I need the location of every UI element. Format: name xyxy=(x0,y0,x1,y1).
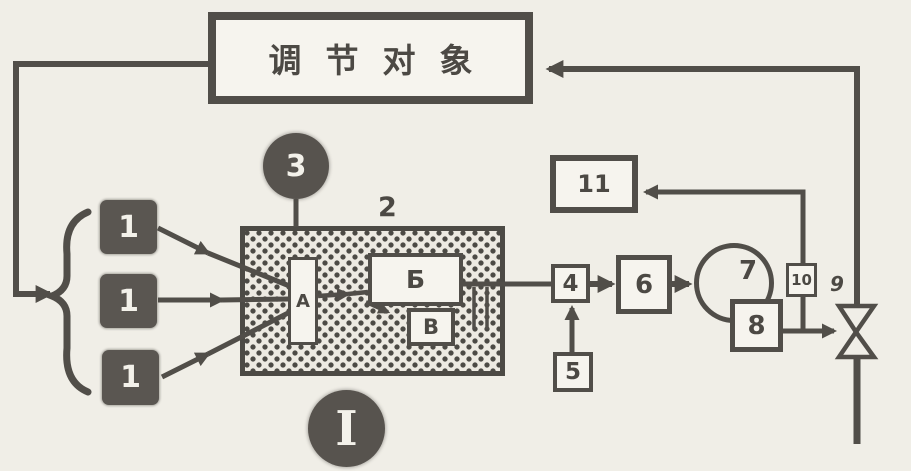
sensor-box-1b: 1 xyxy=(100,274,157,328)
brace-left-icon xyxy=(52,212,88,392)
element-v-label: В xyxy=(423,315,439,339)
sensor1-arrow-tail xyxy=(208,253,292,287)
node-4-label: 4 xyxy=(562,271,578,297)
figure-label-text: I xyxy=(335,401,357,457)
element-b-label: Б xyxy=(406,265,425,294)
diagram-canvas: 调节对象 1 1 1 2 3 А Б В 4 5 6 7 8 1 xyxy=(0,0,911,471)
valve-icon-lower xyxy=(839,332,874,357)
chamber-2-label: 2 xyxy=(378,192,397,223)
node-8-label: 8 xyxy=(747,311,765,341)
sensor-1c-label: 1 xyxy=(120,360,141,395)
node-box-6: 6 xyxy=(616,255,672,314)
valve-9-label-text: 9 xyxy=(830,272,844,296)
a-to-b-arrow-tail xyxy=(348,292,368,294)
feedback-line-left xyxy=(16,64,208,294)
sensor3-arrow-tail xyxy=(208,311,292,354)
node-7-label: 7 xyxy=(739,256,757,286)
a-to-b-arrow xyxy=(318,294,348,296)
chamber-2-label-text: 2 xyxy=(378,192,397,223)
node-11-label: 11 xyxy=(577,170,610,198)
sensor-box-1a: 1 xyxy=(100,200,157,254)
valve-9-label: 9 xyxy=(830,272,844,296)
node-5-label: 5 xyxy=(565,359,581,385)
node-box-5: 5 xyxy=(553,352,593,392)
sensor3-arrow xyxy=(162,354,208,377)
valve-icon xyxy=(839,306,874,332)
element-a-box: А xyxy=(288,257,318,345)
sensor-1a-label: 1 xyxy=(118,210,139,245)
node-box-8: 8 xyxy=(730,299,783,352)
node-6-label: 6 xyxy=(635,270,653,300)
sensor-box-1c: 1 xyxy=(102,350,159,405)
indicator-3-label: 3 xyxy=(286,149,307,184)
node-box-11: 11 xyxy=(550,155,638,213)
node-10-label: 10 xyxy=(791,271,812,289)
indicator-circle-3: 3 xyxy=(263,133,329,199)
controlled-object-label: 调节对象 xyxy=(245,34,497,82)
controlled-object-box: 调节对象 xyxy=(208,12,533,104)
element-b-box: Б xyxy=(368,253,463,306)
element-a-label: А xyxy=(296,291,310,312)
sensor2-arrow-tail xyxy=(222,299,290,300)
sensor-1b-label: 1 xyxy=(118,284,139,319)
sensor1-arrow xyxy=(158,228,208,253)
node-box-4: 4 xyxy=(551,264,590,303)
figure-label-circle: I xyxy=(308,390,385,467)
element-v-box: В xyxy=(407,308,455,346)
node-box-10: 10 xyxy=(786,263,817,297)
